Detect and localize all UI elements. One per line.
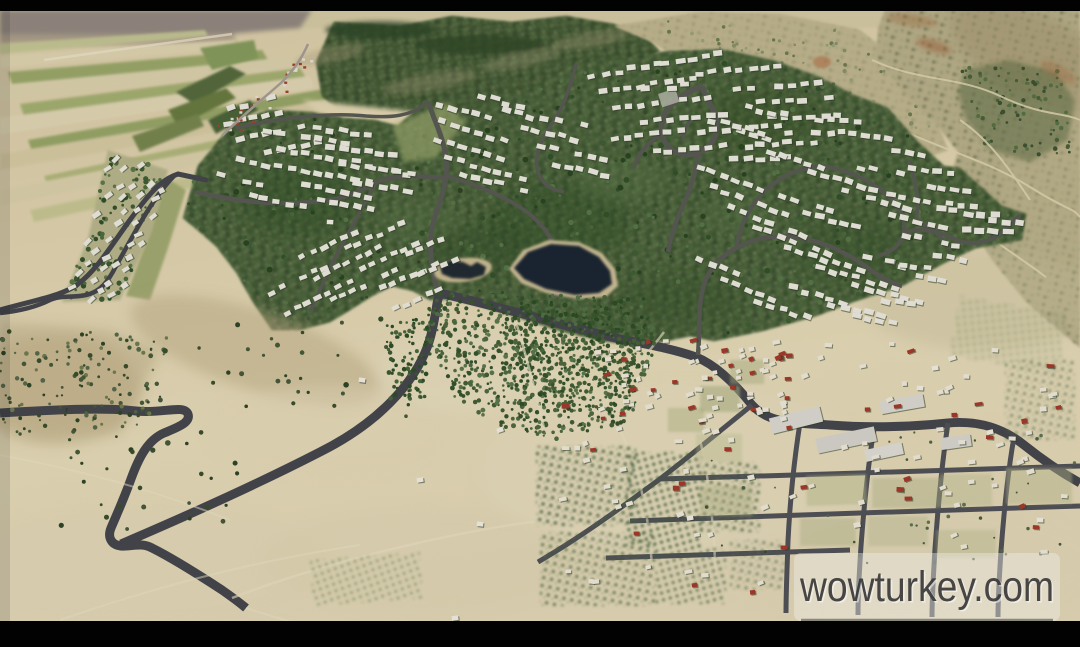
svg-text:wowturkey.com: wowturkey.com xyxy=(799,563,1054,611)
